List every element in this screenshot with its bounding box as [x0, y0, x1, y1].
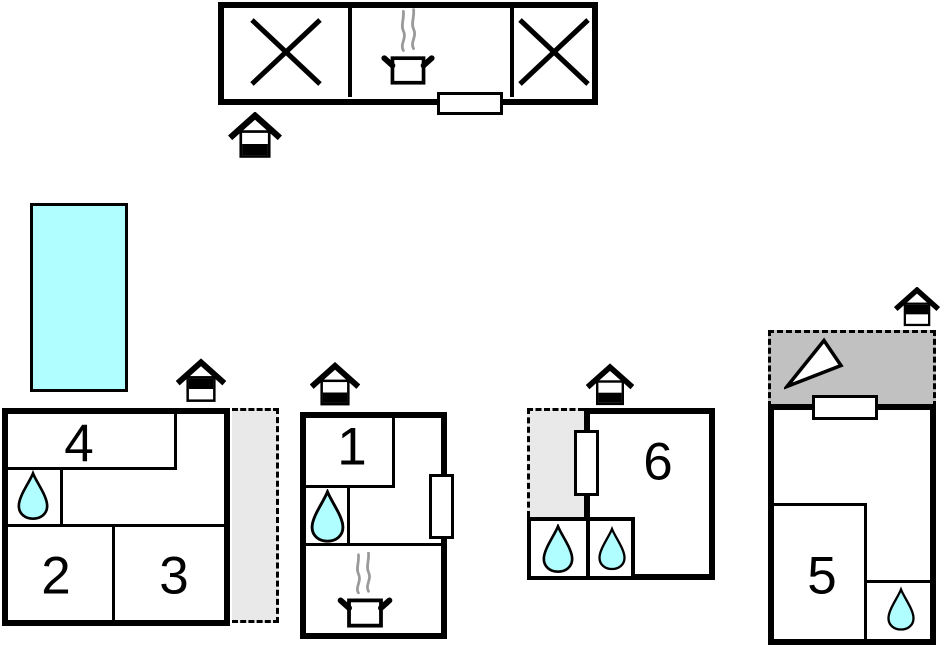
- interior-wall: [867, 580, 930, 583]
- interior-wall: [8, 524, 224, 527]
- room-1-label: 1: [337, 421, 366, 474]
- room-5-label: 5: [807, 550, 836, 603]
- door-opening: [812, 395, 878, 420]
- steaming-pot-icon: [379, 50, 437, 86]
- water-drop-icon: [886, 586, 916, 633]
- window-opening: [429, 474, 454, 539]
- exterior-wall: [584, 408, 715, 414]
- house-entrance-icon: [228, 112, 282, 160]
- room-2-label: 2: [41, 550, 70, 603]
- steam-icon: [350, 552, 376, 594]
- cross-icon: [514, 14, 594, 90]
- water-drop-icon: [309, 489, 346, 544]
- swimming-pool: [30, 203, 128, 392]
- interior-wall: [60, 470, 63, 527]
- room-3-label: 3: [159, 550, 188, 603]
- interior-wall: [774, 503, 867, 506]
- triangle-icon: [784, 337, 844, 390]
- door-opening: [574, 430, 599, 496]
- house-entrance-icon: [310, 362, 360, 408]
- door-opening: [437, 92, 503, 115]
- interior-wall: [392, 418, 395, 488]
- room-4-label: 4: [64, 418, 93, 471]
- floor-plan: 4 2 3 1: [0, 0, 942, 652]
- interior-wall: [347, 488, 350, 546]
- water-drop-icon: [597, 526, 627, 572]
- room-6-label: 6: [643, 436, 672, 489]
- interior-wall: [112, 527, 115, 620]
- interior-wall: [348, 8, 352, 97]
- steam-icon: [395, 8, 421, 52]
- water-drop-icon: [541, 524, 575, 574]
- steaming-pot-icon: [336, 592, 394, 629]
- interior-wall: [174, 414, 177, 470]
- house-entrance-icon: [586, 363, 634, 408]
- interior-wall: [306, 485, 395, 488]
- cross-icon: [246, 14, 326, 90]
- house-entrance-icon: [894, 287, 940, 328]
- house-entrance-icon: [176, 358, 226, 405]
- interior-wall: [864, 506, 867, 639]
- water-drop-icon: [16, 470, 50, 522]
- exterior-wall: [709, 408, 715, 580]
- side-courtyard-area: [232, 408, 279, 623]
